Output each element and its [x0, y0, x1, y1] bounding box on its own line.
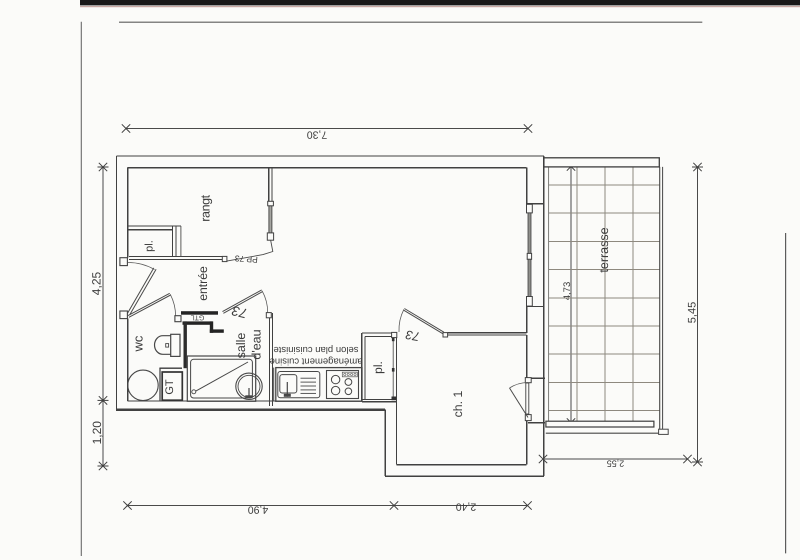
svg-text:selon plan cuisiniste: selon plan cuisiniste	[273, 344, 358, 355]
svg-text:entrée: entrée	[196, 266, 210, 301]
svg-text:2,40: 2,40	[456, 501, 477, 513]
svg-text:4,90: 4,90	[248, 503, 269, 515]
svg-text:2,55: 2,55	[607, 458, 625, 468]
svg-text:d'eau: d'eau	[249, 329, 263, 359]
svg-text:rangt: rangt	[198, 194, 212, 221]
svg-text:salle: salle	[234, 333, 248, 359]
svg-text:terrasse: terrasse	[597, 227, 611, 272]
svg-text:aménagement cuisine: aménagement cuisine	[270, 356, 363, 367]
svg-text:5,45: 5,45	[687, 302, 699, 323]
svg-text:PP 73: PP 73	[234, 253, 258, 265]
svg-text:GT: GT	[164, 379, 176, 395]
svg-text:ch. 1: ch. 1	[451, 391, 465, 418]
svg-text:pl.: pl.	[143, 240, 155, 252]
svg-text:pl.: pl.	[371, 361, 385, 374]
svg-text:7,30: 7,30	[307, 129, 328, 141]
svg-text:wc: wc	[130, 335, 145, 352]
svg-text:GTL: GTL	[191, 313, 205, 320]
svg-text:73: 73	[405, 327, 421, 343]
svg-text:1,20: 1,20	[90, 421, 104, 445]
svg-text:4,25: 4,25	[90, 271, 104, 295]
